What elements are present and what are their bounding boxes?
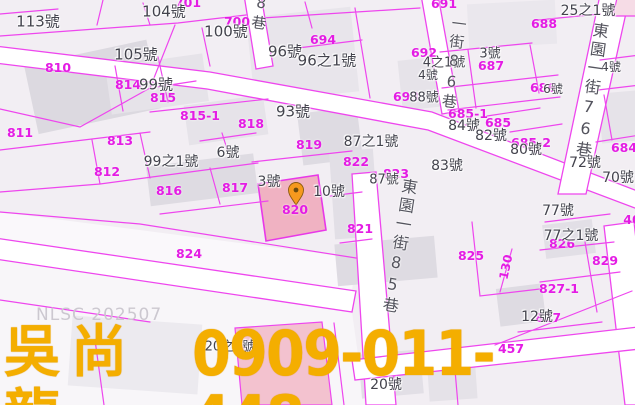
agent-phone-number: 0909-011-448 <box>192 321 591 405</box>
cadastral-map[interactable]: 810811812813814815815-181681781881982082… <box>0 0 635 405</box>
contact-overlay: 吳尚龍 0909-011-448 <box>0 321 635 405</box>
agent-name: 吳尚龍 <box>4 321 198 405</box>
